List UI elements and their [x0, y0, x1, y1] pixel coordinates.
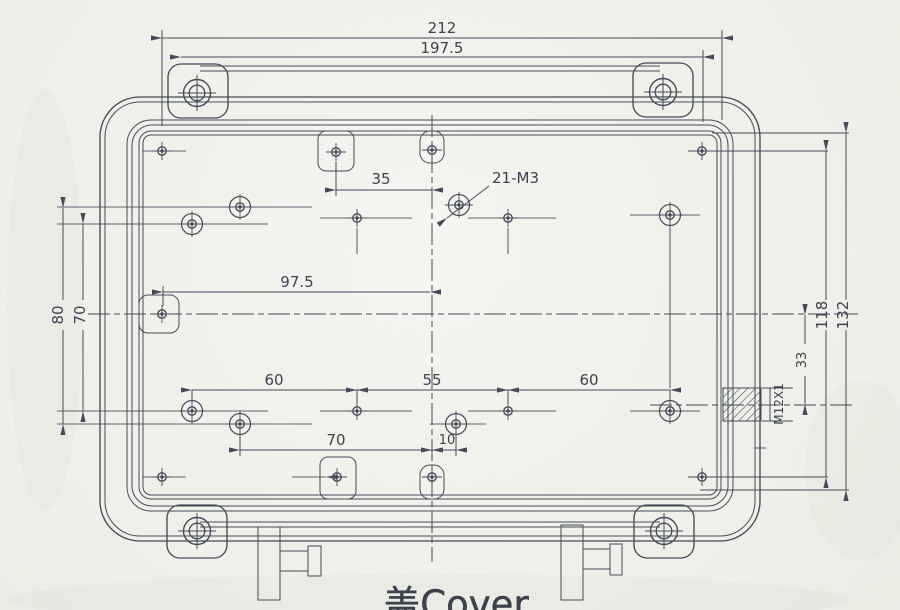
dim-label-mid-width: 97.5 [280, 273, 313, 291]
dim-label-left-outer: 80 [49, 305, 67, 324]
dim-label-overall-width: 212 [428, 19, 457, 37]
dim-label-gland-offset: 33 [795, 352, 810, 369]
dim-label-left-inner: 70 [71, 305, 89, 324]
dim-label-bottom-center-offset: 10 [439, 433, 456, 448]
engineering-drawing-page: 212 197.5 35 21-M3 97.5 80 70 60 55 60 [0, 0, 900, 610]
thread-label: M12X1 [772, 383, 786, 424]
paper-background [0, 0, 900, 610]
dim-label-floor-height: 132 [834, 301, 852, 330]
dim-label-screw-span: 197.5 [421, 39, 464, 57]
dim-label-row-left: 60 [264, 371, 283, 389]
dim-label-row-right: 60 [579, 371, 598, 389]
dim-label-corner-span: 118 [813, 301, 831, 330]
cover-technical-drawing: 212 197.5 35 21-M3 97.5 80 70 60 55 60 [0, 0, 900, 610]
holes-callout-label: 21-M3 [492, 169, 539, 187]
dim-label-tab-offset: 35 [371, 170, 390, 188]
drawing-title: 盖Cover [383, 583, 529, 610]
dim-label-row-center: 55 [422, 371, 441, 389]
scan-smudge [7, 90, 83, 510]
gland-hatched-section [723, 388, 761, 421]
dim-label-bottom-tab-offset: 70 [326, 431, 345, 449]
